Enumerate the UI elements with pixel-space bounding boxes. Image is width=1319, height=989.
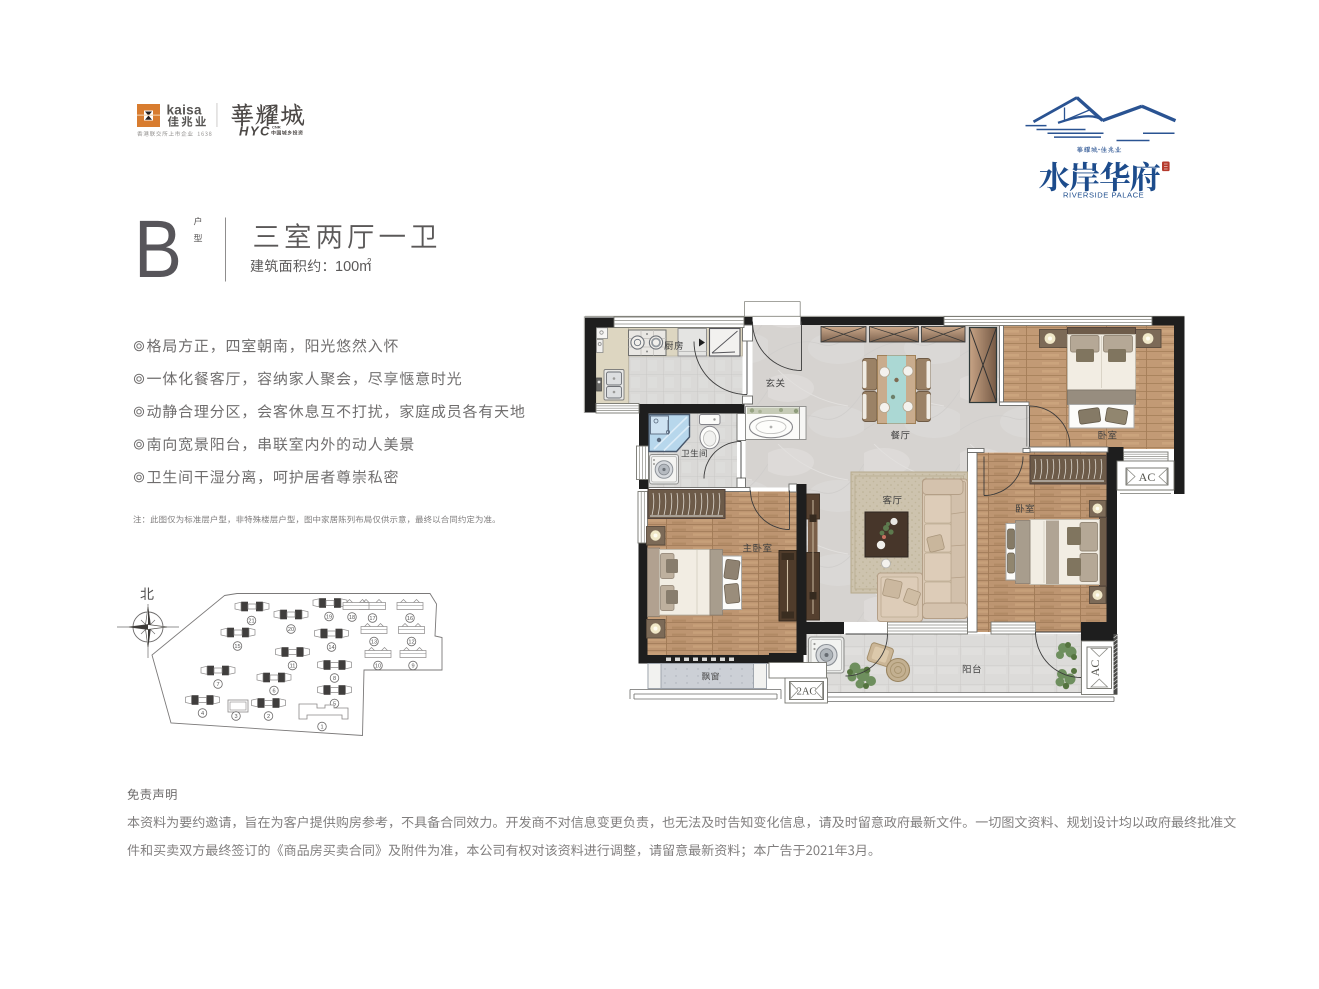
svg-text:19: 19 — [326, 615, 332, 621]
svg-text:15: 15 — [234, 644, 240, 650]
svg-text:AC: AC — [1088, 660, 1102, 677]
svg-text:B: B — [134, 204, 182, 295]
svg-text:3: 3 — [234, 714, 237, 720]
svg-text:9: 9 — [411, 664, 414, 670]
svg-text:4: 4 — [201, 711, 204, 717]
svg-text:10: 10 — [375, 664, 381, 670]
svg-text:CNR: CNR — [272, 125, 281, 130]
svg-text:14: 14 — [328, 645, 334, 651]
svg-text:6: 6 — [272, 689, 275, 695]
svg-text:2AC: 2AC — [797, 687, 817, 698]
svg-text:8: 8 — [333, 676, 336, 682]
svg-text:7: 7 — [216, 682, 219, 688]
svg-text:1: 1 — [320, 725, 323, 731]
svg-text:kaisa: kaisa — [167, 103, 202, 118]
svg-text:20: 20 — [288, 627, 294, 633]
svg-text:RIVERSIDE PALACE: RIVERSIDE PALACE — [1063, 191, 1144, 200]
svg-text:13: 13 — [371, 640, 377, 646]
svg-text:100m: 100m — [335, 259, 371, 275]
svg-text:11: 11 — [290, 664, 296, 670]
svg-text:18: 18 — [349, 615, 355, 621]
svg-text:17: 17 — [369, 616, 375, 622]
svg-text:HYC: HYC — [239, 124, 271, 139]
svg-text:2: 2 — [267, 714, 270, 720]
svg-text:16: 16 — [407, 616, 413, 622]
svg-text:AC: AC — [1139, 470, 1156, 484]
svg-text:21: 21 — [248, 619, 254, 625]
svg-text:2: 2 — [367, 257, 372, 266]
svg-text:12: 12 — [408, 640, 414, 646]
